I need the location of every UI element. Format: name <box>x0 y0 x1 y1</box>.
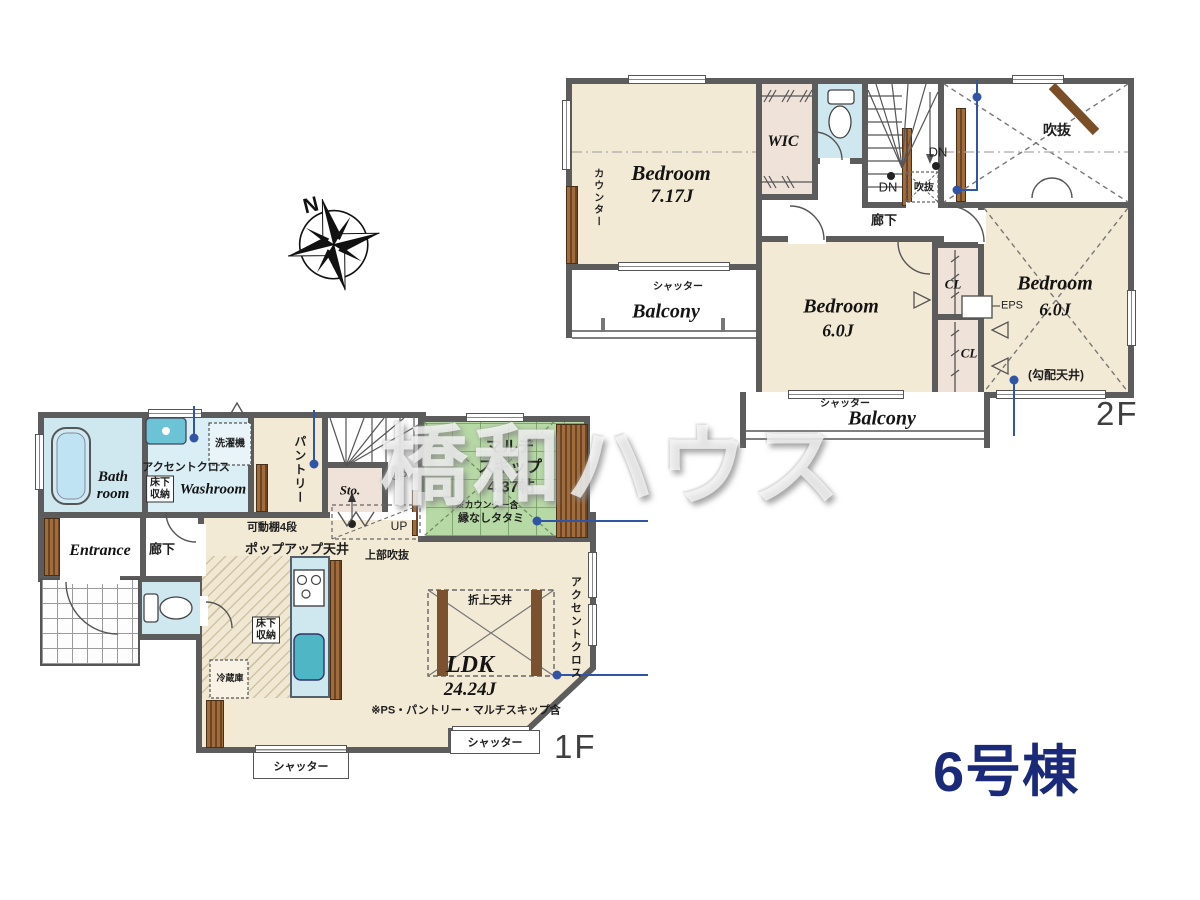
door-gap-entrance <box>60 576 120 584</box>
window-2f-top2 <box>1012 75 1064 84</box>
dn-label-a: DN <box>929 146 948 161</box>
window-1f-ldk-right2 <box>588 604 597 646</box>
underfloor-storage-label-a: 床下 収納 <box>146 476 174 503</box>
ceiling-beam2 <box>531 590 542 676</box>
door-gap-bedroom3 <box>978 210 986 244</box>
window-1f-ldk-right1 <box>588 552 597 598</box>
popup-ceiling-label: ポップアップ天井 <box>245 543 349 558</box>
upper-void-label: 上部吹抜 <box>365 550 409 563</box>
entrance-label: Entrance <box>69 542 130 560</box>
balcony2-label: Balcony <box>848 408 916 431</box>
bedroom1-name-label: Bedroom <box>631 161 710 185</box>
pantry-wood <box>256 464 268 512</box>
ldk-size-label: 24.24J <box>444 679 496 701</box>
door-gap-stairs2f <box>906 202 938 210</box>
storage-label: Sto. <box>340 484 361 499</box>
bedroom2-size-label: 6.0J <box>822 321 854 342</box>
floor2-label: 2F <box>1096 395 1139 433</box>
eps-label: EPS <box>1001 300 1023 313</box>
floorplan-canvas: カウンター Bedroom 7.17J WIC DN DN 吹抜 吹抜 廊下 B… <box>0 0 1200 900</box>
room-2f-toilet <box>812 78 868 164</box>
shutter-label-1f-a: シャッター <box>274 758 329 774</box>
bathroom-label: Bath room <box>97 469 130 504</box>
corridor-2f-label: 廊下 <box>871 214 897 229</box>
counter-label-2f: カウンター <box>591 168 603 228</box>
room-1f-bathroom <box>38 412 148 518</box>
shutter-label-2f-a: シャッター <box>653 281 703 293</box>
void-small-label: 吹抜 <box>914 182 934 194</box>
kitchen-side-wood <box>330 560 342 700</box>
door-gap-toilet2f <box>820 158 850 166</box>
compass-north-label: N <box>301 193 322 220</box>
bedroom3-size-label: 6.0J <box>1039 300 1071 321</box>
shutter-box-1f-a: シャッター <box>253 752 349 779</box>
counter-wood-2f <box>566 186 578 264</box>
void-edge-wood <box>956 108 966 202</box>
wic-label: WIC <box>767 133 798 151</box>
door-gap-bedroom2 <box>788 236 826 244</box>
window-2f-bedroom3 <box>996 390 1106 399</box>
bedroom2-name-label: Bedroom <box>803 296 879 319</box>
window-2f-right <box>1127 290 1136 346</box>
bedroom1-size-label: 7.17J <box>651 186 694 208</box>
bedroom3-name-label: Bedroom <box>1017 273 1093 296</box>
corridor-1f-label: 廊下 <box>149 543 175 558</box>
shutter-label-1f-b: シャッター <box>468 734 523 750</box>
accent-cloth-label-b: アクセントクロス <box>569 576 582 680</box>
closet1-label: CL <box>945 278 962 293</box>
compass-icon <box>277 188 391 302</box>
dn-label-b: DN <box>879 181 898 196</box>
kitchen-counter <box>290 556 330 698</box>
door-gap-toilet1f <box>200 596 208 626</box>
window-1f-bath <box>35 434 44 490</box>
building-number-label: 6号棟 <box>933 727 1079 808</box>
washroom-label: Washroom <box>180 481 246 498</box>
balcony1-label: Balcony <box>632 301 700 324</box>
ldk-note-label: ※PS・パントリー・マルチスキップ含 <box>371 705 560 718</box>
door-gap-corridor-ldk <box>198 524 206 576</box>
shelf-note-label: 可動棚4段 <box>247 522 297 535</box>
accent-cloth-label-a: アクセントクロス <box>142 462 229 475</box>
underfloor-storage-label-b: 床下 収納 <box>252 617 280 644</box>
window-2f-top1 <box>628 75 706 84</box>
porch-tiles <box>40 578 140 666</box>
room-2f-void <box>938 78 1134 208</box>
closet2-label: CL <box>961 347 978 362</box>
ldk-name-label: LDK <box>446 652 494 680</box>
watermark-text: 橋和ハウス <box>380 396 845 523</box>
fridge-label: 冷蔵庫 <box>216 673 243 683</box>
ldk-corner-wood <box>206 700 224 748</box>
floor1-label: 1F <box>554 728 597 766</box>
pantry-label: パントリー <box>292 435 306 505</box>
window-2f-left <box>562 100 571 170</box>
stairs-1f-dot <box>348 520 356 528</box>
room-1f-toilet <box>136 576 206 640</box>
window-1f-washroom <box>148 409 202 418</box>
coffered-ceiling-label: 折上天井 <box>468 595 512 608</box>
sloped-ceiling-label: (勾配天井) <box>1028 369 1084 383</box>
washer-label: 洗濯機 <box>215 438 245 450</box>
window-2f-bedroom1-balcony <box>618 262 730 271</box>
stairs-2f-divider-wood <box>902 128 912 206</box>
shutter-box-1f-b: シャッター <box>450 730 540 754</box>
void-large-label: 吹抜 <box>1043 122 1071 138</box>
entrance-wood <box>44 518 60 576</box>
